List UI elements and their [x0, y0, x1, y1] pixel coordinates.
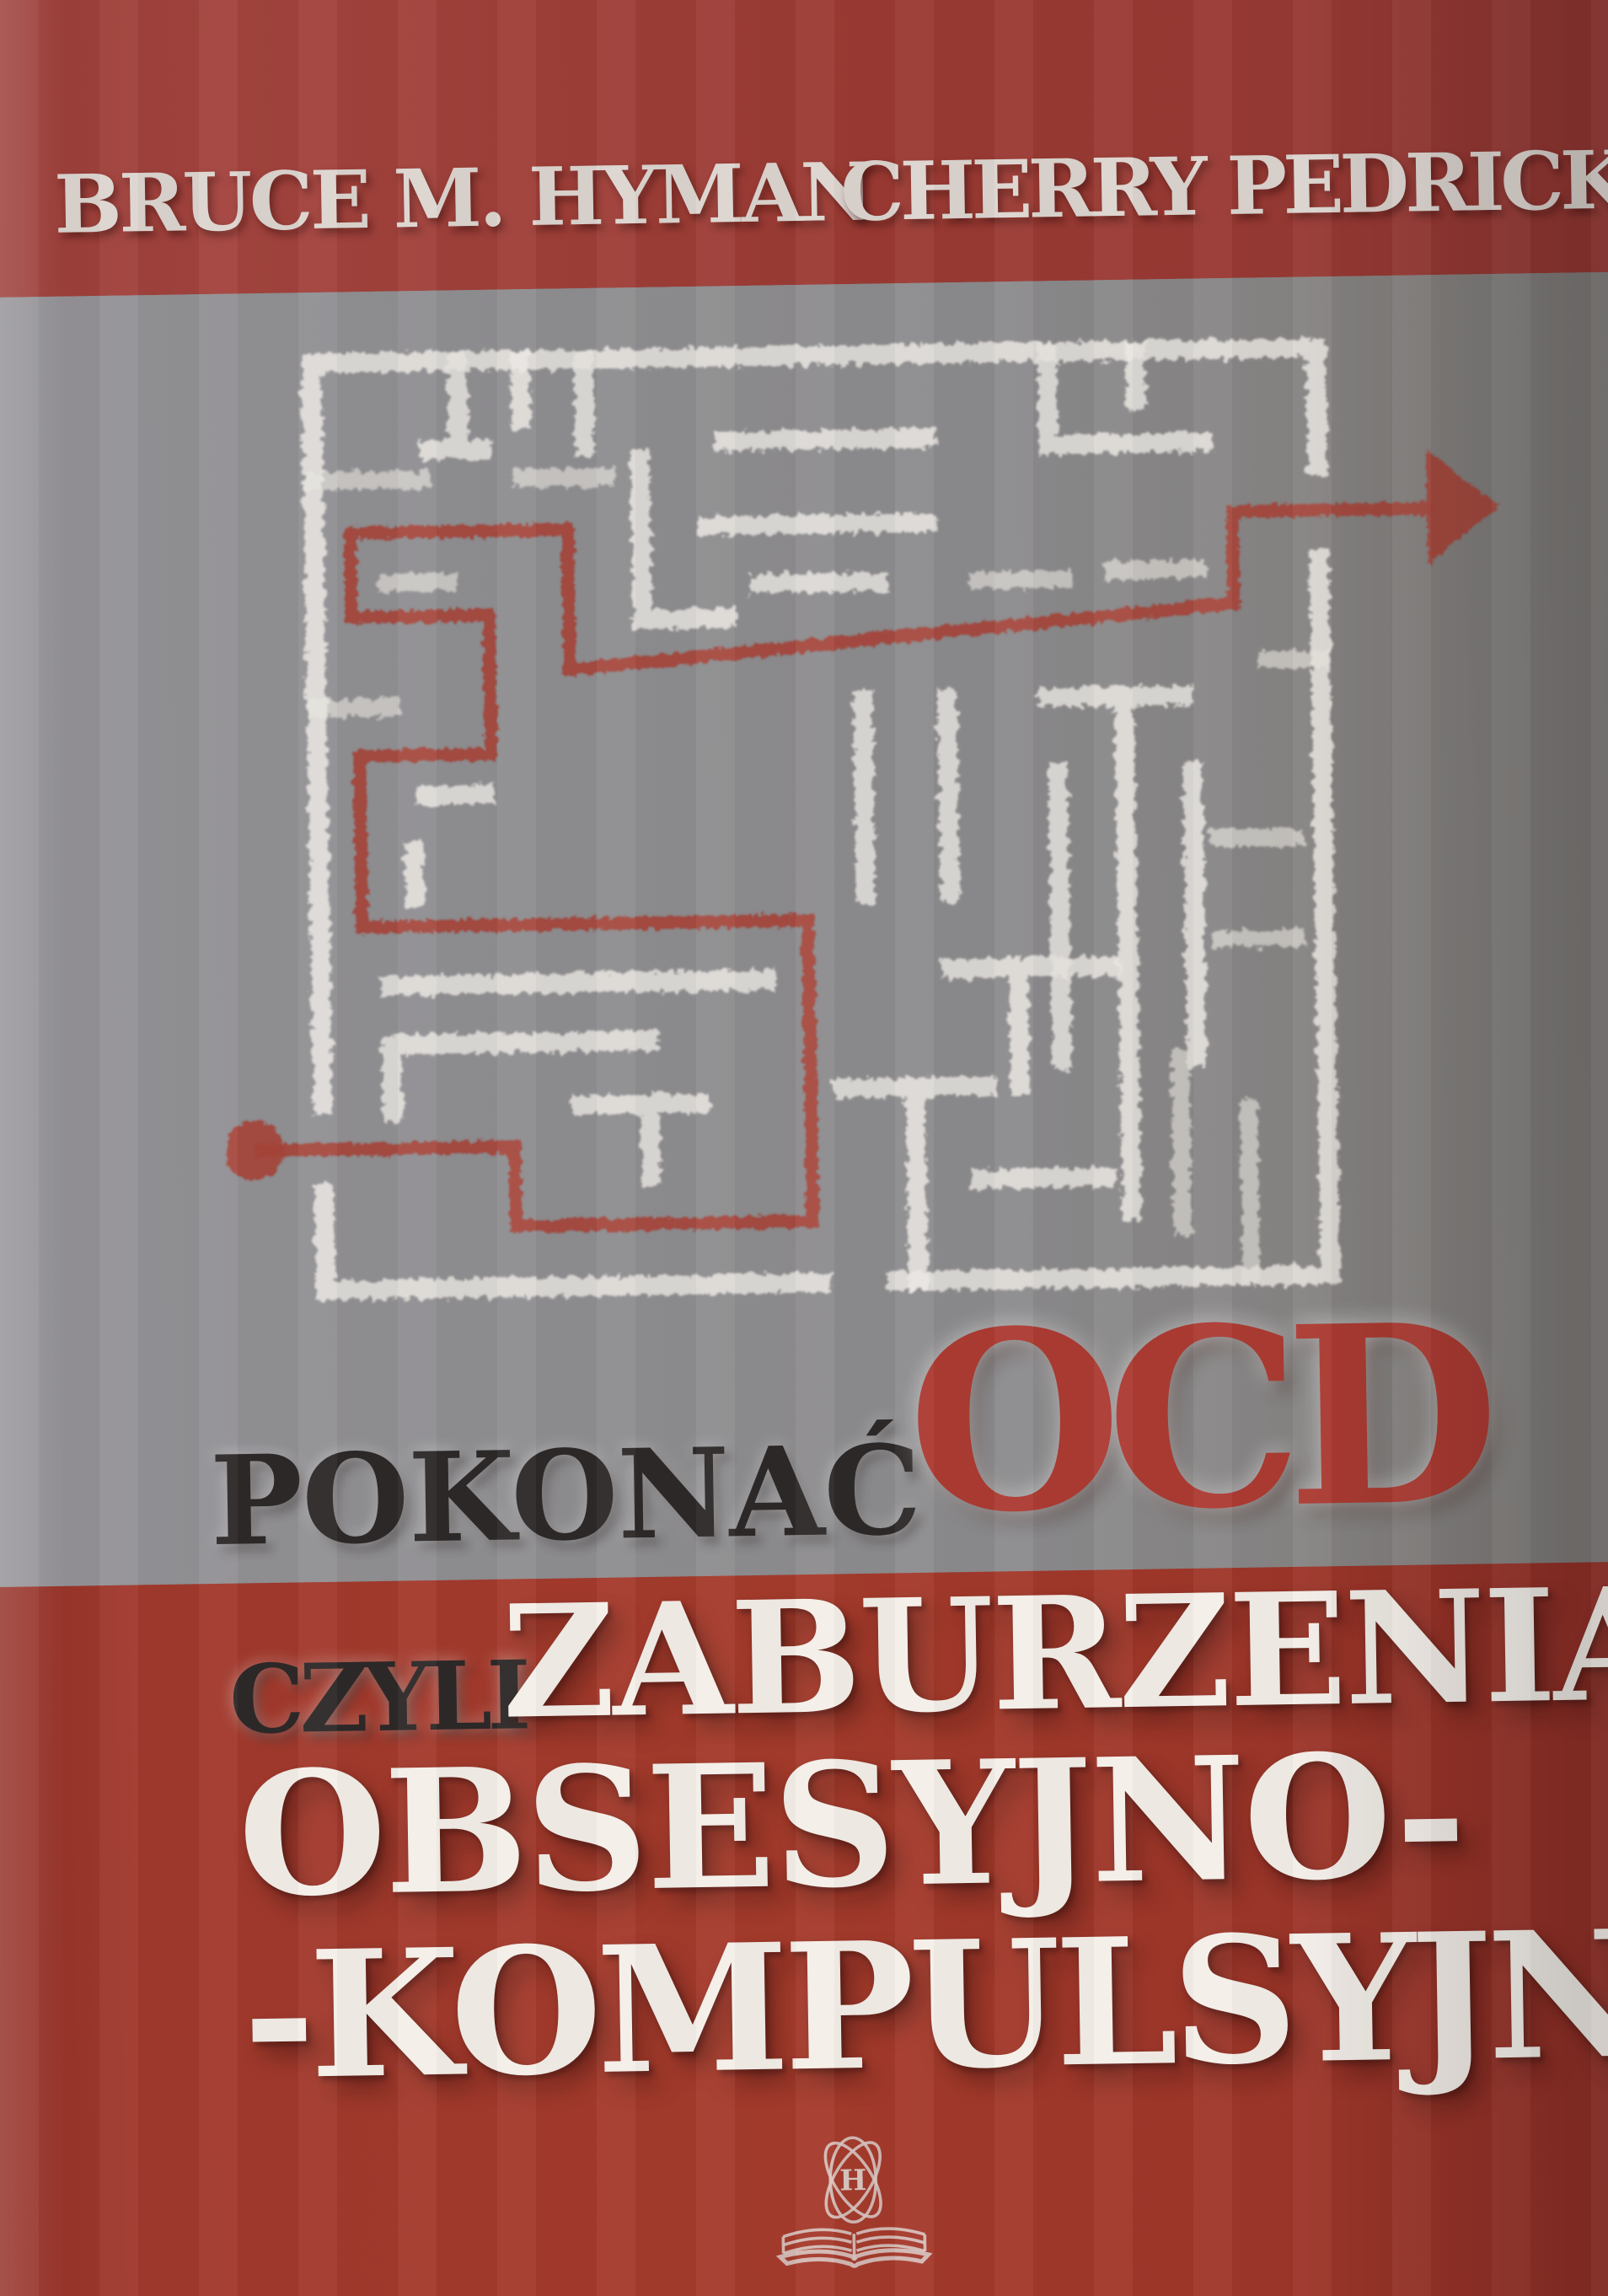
author-name-hyman: BRUCE M. HYMAN: [54, 153, 871, 245]
open-book-icon: [780, 2228, 929, 2266]
publisher-logo-letter: H: [839, 2164, 867, 2197]
publisher-logo: H: [768, 2135, 939, 2296]
title-kompulsyjne: -KOMPULSYJNE: [241, 1905, 1608, 2103]
title-pokonac: POKONAĆ: [209, 1430, 921, 1564]
title-obsesyjno: OBSESYJNO-: [237, 1730, 1465, 1920]
atom-icon: H: [814, 2135, 892, 2226]
author-name-pedrick: CHERRY PEDRICK: [839, 141, 1608, 233]
title-ocd: OCD: [906, 1291, 1486, 1547]
title-zaburzenia: ZABURZENIA: [501, 1567, 1608, 1741]
book-cover: BRUCE M. HYMAN CHERRY PEDRICK: [0, 0, 1608, 2296]
scan-tilt-wrapper: BRUCE M. HYMAN CHERRY PEDRICK: [0, 0, 1608, 2296]
maze-illustration: [165, 294, 1530, 1335]
red-arrow-icon: [1426, 448, 1499, 565]
